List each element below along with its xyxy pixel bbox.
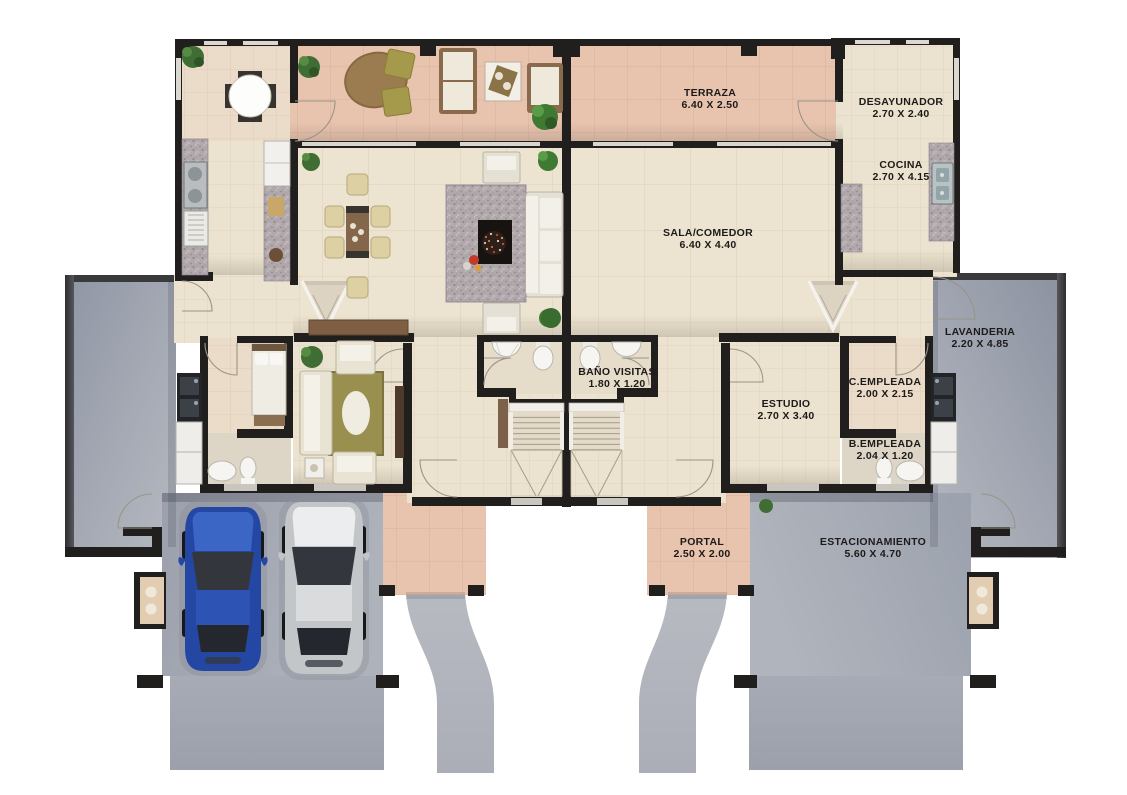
svg-text:B.EMPLEADA: B.EMPLEADA — [849, 438, 922, 450]
svg-text:2.70 X 4.15: 2.70 X 4.15 — [872, 171, 929, 183]
svg-text:2.04 X 1.20: 2.04 X 1.20 — [856, 450, 913, 462]
svg-text:2.20 X 4.85: 2.20 X 4.85 — [951, 338, 1008, 350]
svg-text:2.00 X 2.15: 2.00 X 2.15 — [856, 388, 913, 400]
svg-text:PORTAL: PORTAL — [680, 536, 724, 548]
svg-text:BAÑO VISITAS: BAÑO VISITAS — [578, 365, 656, 378]
svg-text:COCINA: COCINA — [879, 159, 922, 171]
svg-text:2.70 X 2.40: 2.70 X 2.40 — [872, 108, 929, 120]
svg-text:5.60 X 4.70: 5.60 X 4.70 — [844, 548, 901, 560]
svg-text:2.50 X 2.00: 2.50 X 2.00 — [673, 548, 730, 560]
svg-text:1.80 X 1.20: 1.80 X 1.20 — [588, 378, 645, 390]
svg-text:ESTUDIO: ESTUDIO — [762, 398, 811, 410]
svg-text:ESTACIONAMIENTO: ESTACIONAMIENTO — [820, 536, 926, 548]
svg-text:DESAYUNADOR: DESAYUNADOR — [859, 96, 944, 108]
svg-text:6.40 X 2.50: 6.40 X 2.50 — [681, 99, 738, 111]
svg-text:TERRAZA: TERRAZA — [684, 87, 736, 99]
svg-text:LAVANDERIA: LAVANDERIA — [945, 326, 1015, 338]
svg-text:2.70 X 3.40: 2.70 X 3.40 — [757, 410, 814, 422]
svg-text:6.40 X 4.40: 6.40 X 4.40 — [679, 239, 736, 251]
svg-text:SALA/COMEDOR: SALA/COMEDOR — [663, 227, 753, 239]
svg-text:C.EMPLEADA: C.EMPLEADA — [849, 376, 922, 388]
